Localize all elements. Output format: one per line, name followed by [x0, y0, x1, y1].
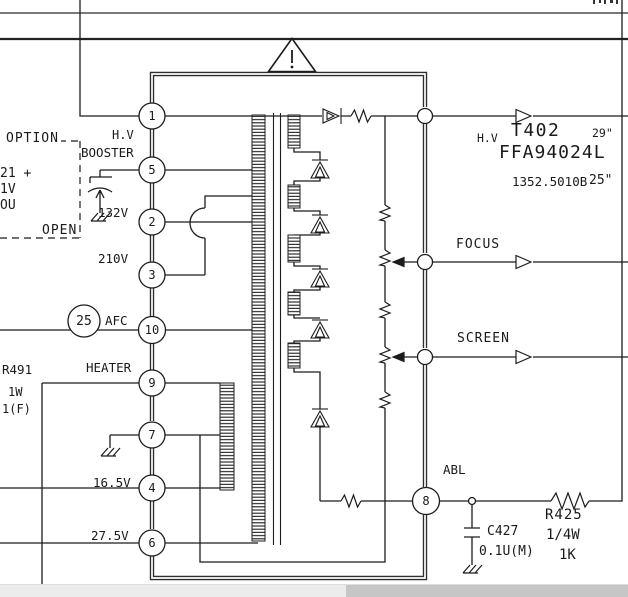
pin4-16v-label: 16.5V: [93, 477, 131, 490]
clipped-text-fragment: [610, 0, 613, 3]
pin-number-2: 2: [139, 216, 165, 228]
clipped-cap-ref: 21 +: [0, 167, 31, 180]
pin-number-9: 9: [139, 377, 165, 389]
hv-output-label: H.V: [477, 133, 498, 145]
transformer-designator: T402: [511, 122, 560, 140]
secondary-winding-1: [288, 115, 300, 148]
screen-output-label: SCREEN: [457, 332, 510, 345]
divider-resistor: [380, 392, 390, 408]
screen-wiper-arrow-icon: [393, 353, 404, 362]
ground-icon: [101, 448, 120, 456]
focus-output-label: FOCUS: [456, 238, 500, 251]
focus-arrow-icon: [516, 256, 531, 269]
option-box-title: OPTION: [4, 132, 61, 145]
pin-number-10: 10: [139, 324, 165, 336]
schematic-linework: [0, 0, 628, 597]
hv-node: [418, 109, 433, 124]
focus-wiper-arrow-icon: [393, 258, 404, 267]
windings: [220, 115, 300, 541]
warning-icon: [269, 39, 316, 72]
diode-icon: [311, 160, 329, 178]
resistor-symbols: [341, 110, 589, 509]
pin1-hv-label: H.V: [112, 129, 134, 141]
clipped-text-fragment: [604, 0, 606, 4]
heater-winding: [220, 383, 234, 490]
pin-number-6: 6: [139, 537, 165, 549]
clipped-cap-value: OU: [0, 199, 16, 212]
wires: [0, 0, 628, 584]
schematic-viewer: OPTION 21 + 1V OU OPEN H.V BOOSTER 132V …: [0, 0, 628, 597]
pin-number-8: 8: [413, 495, 439, 507]
primary-winding: [252, 115, 265, 541]
clipped-text-fragment: [593, 0, 595, 4]
clipped-text-fragment: [599, 0, 601, 3]
pin-number-7: 7: [139, 429, 165, 441]
bus-lines: [0, 13, 628, 39]
c427-value: 0.1U(M): [479, 545, 534, 558]
divider-resistor: [380, 302, 390, 318]
divider-resistor: [380, 205, 390, 221]
transformer-core: [274, 113, 281, 545]
c427-ref: C427: [487, 525, 518, 538]
secondary-winding-5: [288, 343, 300, 368]
rectifier-diodes: [311, 108, 341, 427]
diode-icon: [323, 108, 341, 124]
divider-line: [200, 116, 385, 562]
pin10-afc-label: AFC: [105, 315, 128, 328]
screen-arrow-icon: [516, 351, 531, 364]
ground-icon: [463, 565, 482, 573]
option-state-label: OPEN: [40, 224, 79, 237]
secondary-winding-3: [288, 235, 300, 262]
diode-icon: [311, 269, 329, 287]
r491-tolerance: 1(F): [2, 403, 31, 415]
junction-node: [469, 498, 476, 505]
focus-node: [418, 255, 433, 270]
pin-number-4: 4: [139, 482, 165, 494]
pin-number-3: 3: [139, 269, 165, 281]
pin5-booster-label: BOOSTER: [81, 147, 134, 160]
resistor-symbol: [341, 495, 361, 507]
r425-value: 1K: [559, 548, 576, 562]
secondary-winding-2: [288, 185, 300, 208]
pin-number-5: 5: [139, 164, 165, 176]
transformer-part-number: FFA94024L: [499, 144, 606, 162]
abl-label: ABL: [443, 464, 466, 477]
pin-number-1: 1: [139, 110, 165, 122]
divider-resistor: [380, 347, 390, 363]
resistor-symbol: [351, 110, 371, 122]
callout-number: 25: [71, 315, 97, 328]
r491-ref: R491: [2, 364, 32, 377]
diode-icon: [311, 409, 329, 427]
clipped-text-fragment: [616, 0, 618, 4]
screen-node: [418, 350, 433, 365]
secondary-winding-4: [288, 292, 300, 315]
screen-size-25: 25": [589, 174, 612, 187]
diode-icon: [311, 320, 329, 338]
r491-wattage: 1W: [8, 386, 22, 398]
r425-ref: R425: [545, 508, 583, 522]
transformer-outline: [152, 74, 425, 578]
pin9-heater-label: HEATER: [86, 362, 131, 375]
r425-wattage: 1/4W: [546, 528, 580, 542]
pin3-210v-label: 210V: [98, 253, 128, 266]
transformer-alt-part: 1352.5010B: [512, 176, 587, 189]
clipped-cap-voltage: 1V: [0, 183, 16, 196]
c427-capacitor-symbol: [464, 501, 480, 565]
divider-resistor: [380, 250, 390, 266]
pin6-27v-label: 27.5V: [91, 530, 129, 543]
pin2-132v-label: 132V: [98, 207, 128, 220]
screen-size-29: 29": [592, 128, 613, 140]
horizontal-scrollbar-thumb[interactable]: [346, 585, 628, 597]
diode-icon: [311, 215, 329, 233]
